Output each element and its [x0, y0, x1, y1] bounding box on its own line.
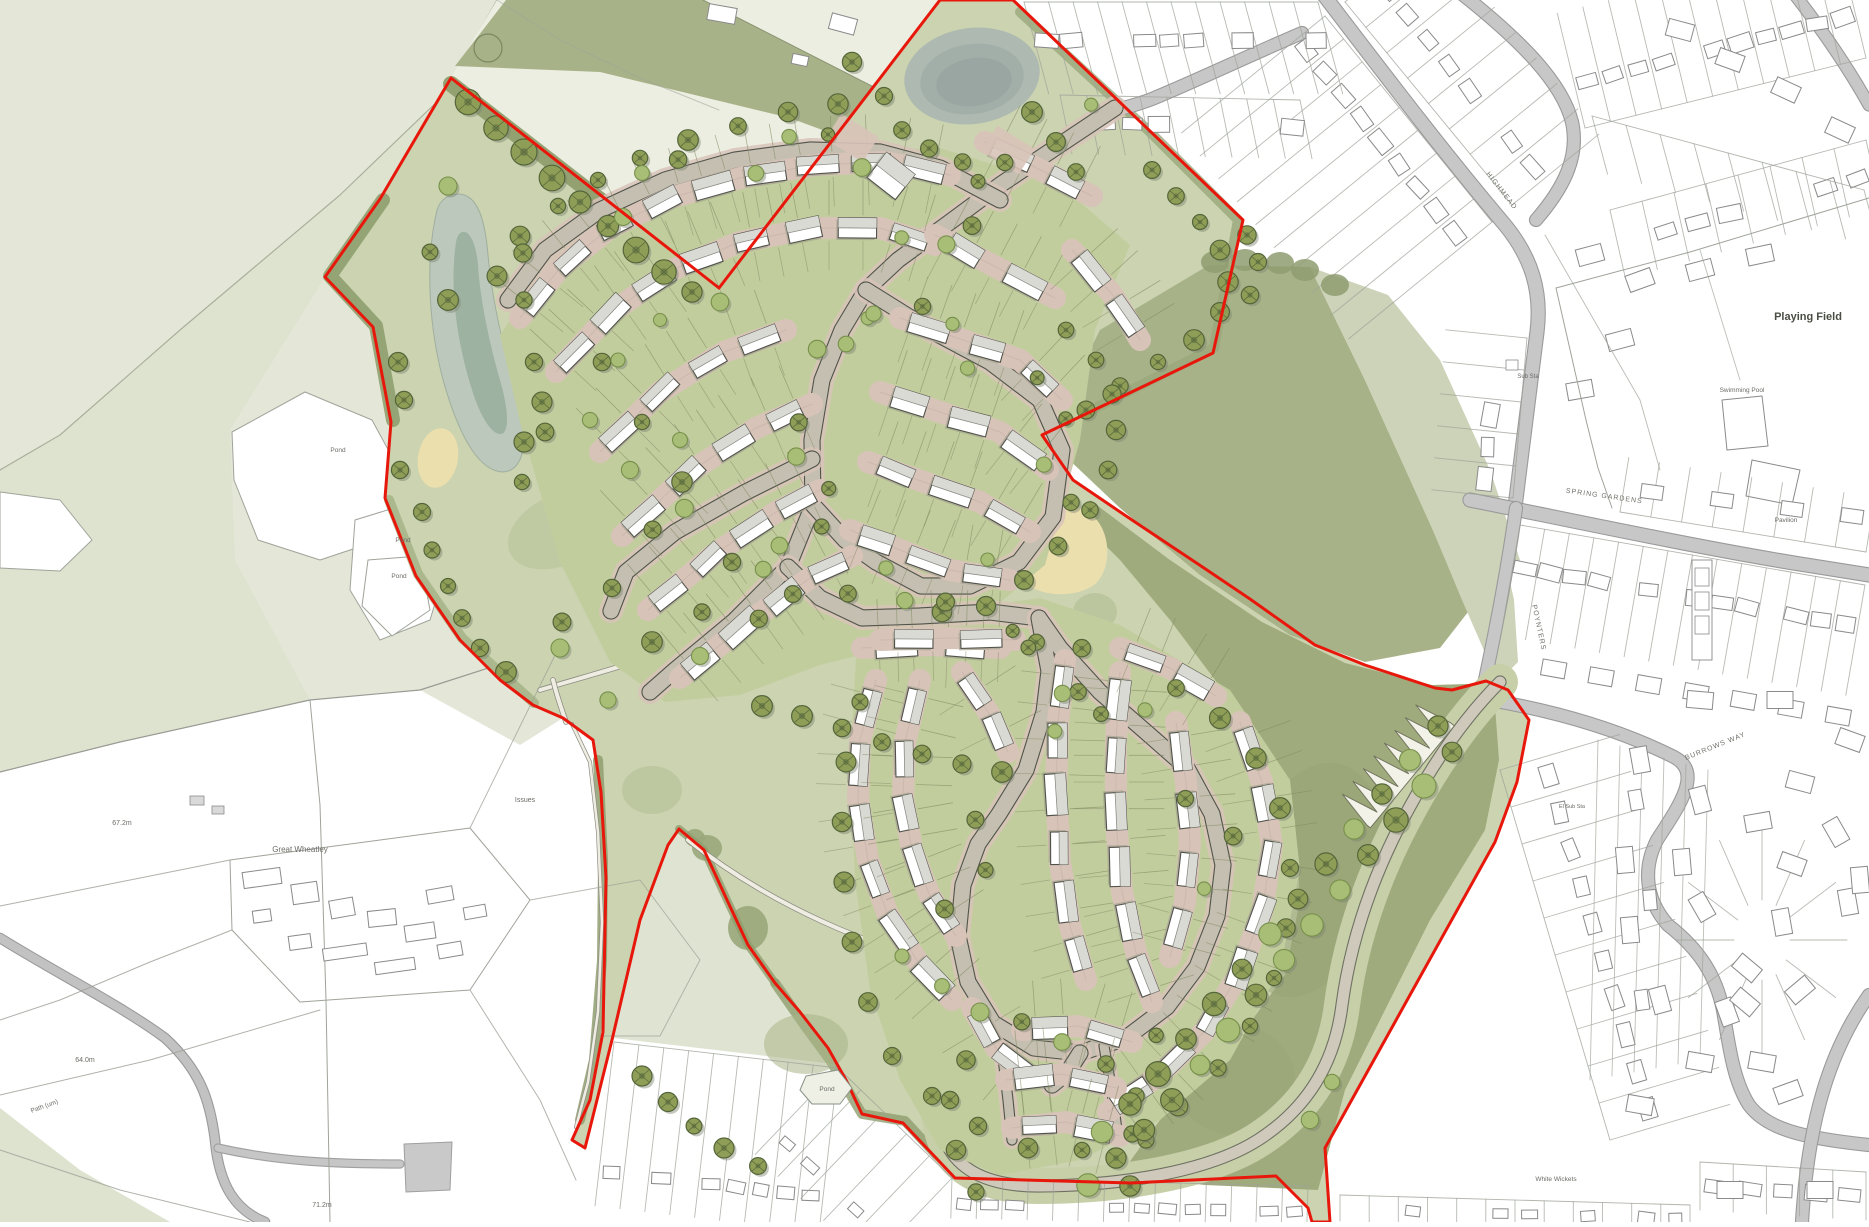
- svg-text:Pavilion: Pavilion: [1775, 517, 1798, 524]
- svg-text:Playing Field: Playing Field: [1774, 311, 1842, 323]
- svg-text:Pond: Pond: [391, 573, 407, 580]
- svg-text:Pond: Pond: [395, 537, 411, 544]
- svg-text:Swimming Pool: Swimming Pool: [1720, 387, 1765, 394]
- svg-text:Great Wheatley: Great Wheatley: [272, 845, 328, 854]
- svg-text:Sub Sta: Sub Sta: [1517, 374, 1539, 380]
- svg-text:El Sub Sta: El Sub Sta: [1559, 804, 1586, 810]
- svg-text:White Wickets: White Wickets: [1535, 1176, 1577, 1183]
- svg-text:67.2m: 67.2m: [112, 820, 132, 827]
- svg-text:71.2m: 71.2m: [312, 1202, 332, 1209]
- svg-text:Issues: Issues: [515, 797, 536, 804]
- svg-text:64.0m: 64.0m: [75, 1057, 95, 1064]
- svg-text:Pond: Pond: [330, 447, 346, 454]
- svg-text:Pond: Pond: [819, 1086, 835, 1093]
